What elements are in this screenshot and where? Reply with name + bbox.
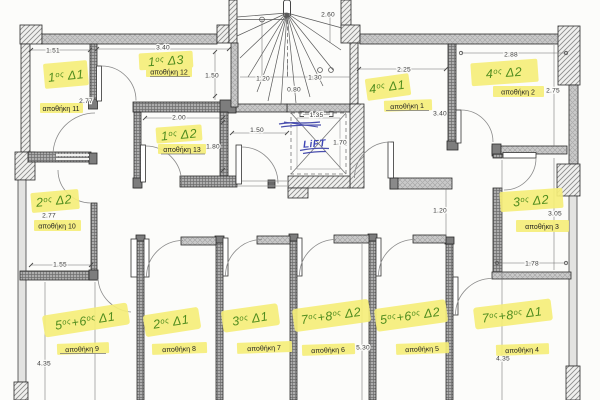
svg-text:1.20: 1.20 [433, 208, 447, 215]
svg-text:αποθήκη 2: αποθήκη 2 [501, 90, 535, 97]
svg-text:1.70: 1.70 [333, 140, 347, 147]
svg-text:2.77: 2.77 [42, 213, 56, 220]
svg-text:1.55: 1.55 [53, 262, 67, 269]
svg-text:0.80: 0.80 [287, 87, 301, 94]
svg-text:1.50: 1.50 [205, 73, 219, 80]
svg-text:αποθήκη 7: αποθήκη 7 [247, 345, 281, 353]
svg-text:2.25: 2.25 [397, 67, 411, 74]
svg-text:1.35: 1.35 [310, 112, 324, 119]
svg-text:1.30: 1.30 [308, 75, 322, 82]
svg-text:αποθήκη 9: αποθήκη 9 [65, 346, 99, 354]
svg-text:2.88: 2.88 [504, 52, 518, 59]
svg-text:4.35: 4.35 [37, 361, 51, 368]
svg-text:3.40: 3.40 [156, 45, 170, 52]
svg-text:1ος Δ3: 1ος Δ3 [147, 53, 184, 69]
svg-text:αποθήκη 1: αποθήκη 1 [390, 103, 424, 111]
svg-text:3.40: 3.40 [433, 111, 447, 118]
svg-text:4ος Δ2: 4ος Δ2 [485, 65, 522, 82]
svg-text:1.51: 1.51 [46, 47, 60, 54]
svg-text:αποθήκη 12: αποθήκη 12 [150, 70, 188, 77]
svg-text:3.05: 3.05 [548, 211, 562, 218]
svg-text:1.78: 1.78 [525, 261, 539, 268]
svg-text:αποθήκη 11: αποθήκη 11 [42, 106, 79, 113]
svg-text:αποθήκη 4: αποθήκη 4 [505, 347, 539, 355]
svg-text:1.80: 1.80 [206, 144, 220, 151]
svg-text:4.35: 4.35 [496, 356, 510, 363]
svg-text:αποθήκη 3: αποθήκη 3 [525, 224, 559, 231]
svg-text:2.00: 2.00 [172, 115, 186, 122]
svg-text:αποθήκη 5: αποθήκη 5 [405, 346, 439, 354]
svg-text:αποθήκη 13: αποθήκη 13 [163, 147, 201, 154]
svg-text:αποθήκη 8: αποθήκη 8 [162, 346, 196, 354]
svg-text:αποθήκη 6: αποθήκη 6 [311, 347, 345, 355]
svg-text:αποθήκη 10: αποθήκη 10 [38, 224, 76, 231]
svg-text:1.20: 1.20 [256, 76, 270, 83]
svg-text:5.30: 5.30 [356, 345, 370, 352]
svg-text:2.75: 2.75 [546, 88, 560, 95]
svg-text:1.50: 1.50 [250, 127, 264, 134]
svg-text:2.60: 2.60 [321, 12, 335, 19]
